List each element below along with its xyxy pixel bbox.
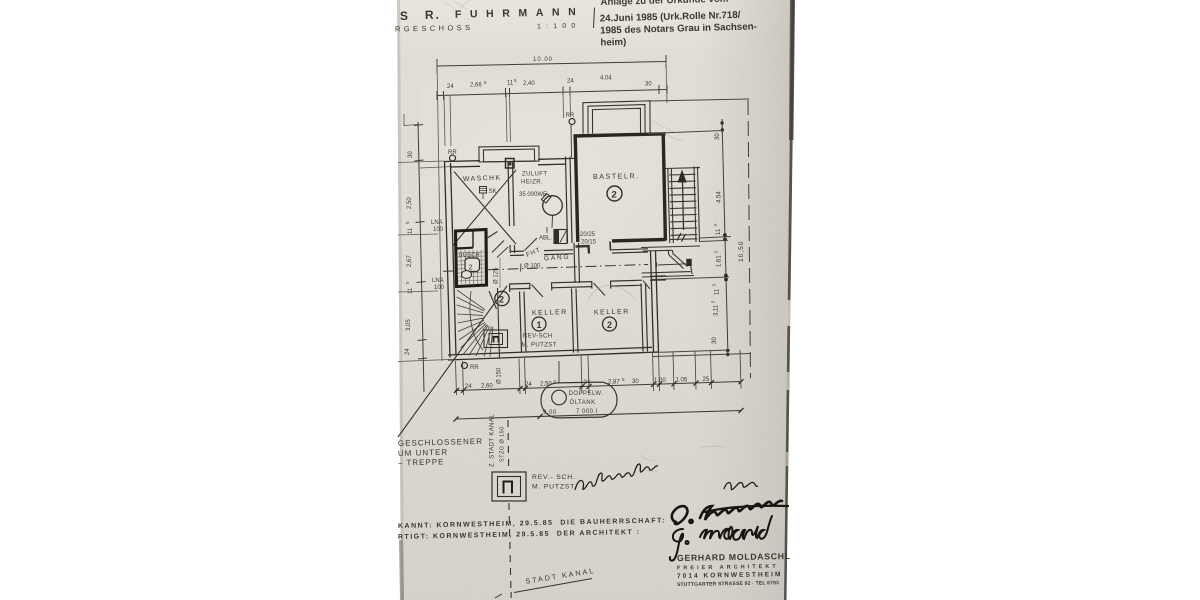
svg-text:1.61: 1.61 [717, 255, 723, 267]
svg-text:4.54: 4.54 [717, 191, 723, 203]
svg-text:LNA: LNA [431, 220, 443, 226]
svg-text:Z. STADT KANAL: Z. STADT KANAL [490, 414, 496, 467]
svg-text:11: 11 [507, 81, 514, 87]
svg-text:24: 24 [525, 382, 532, 388]
svg-text:WASCHK: WASCHK [463, 175, 502, 183]
svg-text:30: 30 [712, 337, 718, 344]
svg-text:RGESCHOSS: RGESCHOSS [395, 23, 474, 34]
svg-text:R.: R. [425, 8, 441, 22]
svg-text:KELLER: KELLER [594, 309, 630, 317]
svg-text:ABL.: ABL. [539, 236, 552, 242]
svg-text:LNA: LNA [432, 278, 444, 284]
svg-text:30: 30 [408, 151, 414, 158]
svg-text:24: 24 [447, 84, 454, 90]
svg-text:heim): heim) [600, 37, 626, 49]
svg-text:M. PUTZST.: M. PUTZST. [532, 484, 577, 491]
svg-text:25: 25 [703, 377, 710, 383]
svg-text:7 000 l: 7 000 l [576, 409, 598, 415]
svg-text:1.05: 1.05 [676, 378, 688, 384]
svg-text:GERHARD MOLDASCHL: GERHARD MOLDASCHL [677, 551, 791, 563]
svg-text:100: 100 [434, 285, 445, 291]
svg-text:11: 11 [408, 227, 414, 234]
svg-text:3,05: 3,05 [406, 319, 412, 331]
svg-text:1:100: 1:100 [537, 23, 581, 31]
svg-text:3,11: 3,11 [714, 304, 720, 316]
svg-text:2,50: 2,50 [407, 197, 413, 209]
svg-text:2,67: 2,67 [407, 255, 413, 267]
svg-text:RR: RR [566, 113, 575, 119]
svg-text:4.04: 4.04 [600, 76, 612, 82]
svg-text:Ø 100: Ø 100 [524, 264, 541, 270]
svg-text:REV.- SCH.: REV.- SCH. [532, 474, 576, 481]
svg-text:ÖLTANK: ÖLTANK [570, 399, 596, 406]
svg-text:11: 11 [715, 288, 721, 295]
svg-text:RR: RR [470, 365, 479, 371]
svg-text:SK: SK [489, 189, 497, 195]
svg-text:2: 2 [469, 263, 473, 272]
svg-text:S: S [400, 9, 408, 23]
svg-text:100: 100 [433, 227, 444, 233]
svg-text:– TREPPE: – TREPPE [398, 457, 445, 467]
svg-text:35 000WE: 35 000WE [519, 192, 547, 198]
svg-text:2: 2 [607, 320, 612, 330]
svg-text:KELLER: KELLER [532, 309, 568, 317]
svg-text:24: 24 [405, 348, 411, 355]
svg-text:30: 30 [632, 379, 639, 385]
svg-text:24: 24 [465, 384, 472, 390]
svg-text:REV-SCH: REV-SCH [523, 334, 552, 340]
svg-text:20/25: 20/25 [580, 232, 596, 238]
svg-text:Ø 125: Ø 125 [494, 267, 500, 284]
svg-text:10.00: 10.00 [533, 57, 553, 63]
svg-text:2,66: 2,66 [470, 83, 482, 89]
svg-text:2,60: 2,60 [481, 383, 493, 389]
svg-text:30: 30 [715, 133, 721, 140]
svg-text:24: 24 [584, 380, 591, 386]
svg-text:DOPPELW.: DOPPELW. [569, 391, 604, 397]
svg-text:STZG Ø 150: STZG Ø 150 [500, 426, 506, 462]
svg-text:20/15: 20/15 [581, 240, 597, 246]
svg-text:Ø 150: Ø 150 [497, 367, 503, 384]
svg-text:30: 30 [645, 82, 652, 88]
svg-text:11: 11 [408, 287, 414, 294]
svg-text:2,40: 2,40 [523, 81, 535, 87]
svg-text:ZULUFT: ZULUFT [522, 172, 547, 178]
svg-text:2: 2 [612, 190, 617, 201]
svg-text:M. PUTZST: M. PUTZST [522, 343, 557, 349]
svg-text:HEIZR.: HEIZR. [521, 180, 543, 186]
svg-text:11: 11 [716, 228, 722, 235]
svg-text:1.00: 1.00 [654, 378, 666, 384]
svg-text:24: 24 [567, 79, 574, 85]
svg-text:BASTELR.: BASTELR. [593, 171, 640, 181]
svg-text:1: 1 [537, 320, 542, 330]
svg-text:10,50: 10,50 [738, 240, 745, 262]
svg-text:9.00: 9.00 [543, 410, 557, 416]
